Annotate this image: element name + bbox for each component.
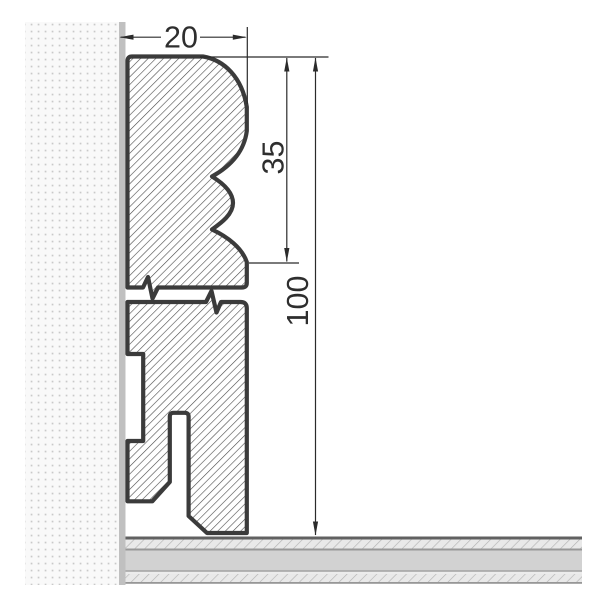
floor-top-surface-line [126,537,583,540]
wall-section [25,22,126,585]
dimension-upper-height-label: 35 [257,141,291,175]
skirting-profile-lower [128,291,247,533]
floor-underlay-gap [126,572,583,574]
dimension-total-height-label: 100 [281,276,315,327]
floor-backing-layer [126,574,583,582]
floor-wear-layer [126,540,583,549]
floor-layer-line-1 [126,549,583,551]
floor-assembly [126,537,583,584]
technical-drawing-svg: 20 35 100 [0,0,604,604]
wall-surface-strip [119,22,126,585]
technical-drawing-page: 20 35 100 [0,0,604,604]
wall-stipple-area [25,22,119,585]
dimension-width-label: 20 [164,21,198,55]
floor-core-layer [126,551,583,571]
floor-layer-line-2 [126,570,583,572]
floor-bottom-line [126,582,583,584]
